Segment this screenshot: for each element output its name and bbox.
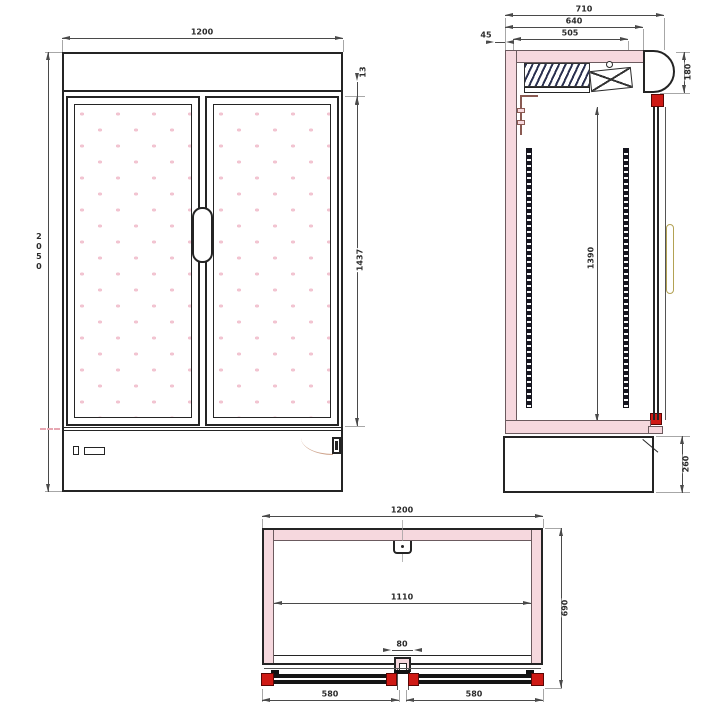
top-hinge-block	[651, 94, 664, 107]
back-wall-insulation	[505, 50, 517, 424]
evaporator-coil	[524, 63, 590, 87]
dim-front-overall-width-label: 1200	[190, 29, 214, 38]
controller-display	[84, 447, 105, 455]
plan-hinge-center-left	[386, 673, 397, 686]
dim-plan-center-mullion-label: 80	[395, 641, 408, 650]
left-door-seal	[268, 680, 386, 684]
plan-right-insulation	[531, 530, 541, 663]
glass-door-edge	[653, 107, 659, 420]
extension-line	[656, 492, 690, 493]
pipe-fitting	[517, 120, 525, 125]
drain-pipe-vertical	[520, 95, 522, 135]
dim-plan-overall-width	[262, 516, 543, 517]
extension-line	[505, 18, 506, 50]
extension-line	[543, 519, 544, 528]
fan-motor-icon	[606, 61, 613, 68]
power-switch	[73, 446, 79, 455]
canopy-bottom-edge	[64, 90, 341, 92]
dim-plan-center-mullion	[392, 650, 413, 651]
shelf-rail-rear	[526, 148, 532, 408]
right-door-glass	[213, 104, 331, 418]
door-sill	[64, 427, 341, 431]
extension-line	[343, 40, 344, 52]
leveling-mark	[40, 428, 60, 430]
dim-front-door-height-label: 1437	[357, 248, 366, 272]
floor-front-step	[648, 426, 663, 434]
left-door-glass	[74, 104, 192, 418]
dim-side-canopy-height-label: 180	[685, 63, 694, 82]
extension-line	[62, 40, 63, 52]
dim-side-interior-depth	[513, 39, 628, 40]
dim-front-top-trim-label: 13	[360, 65, 369, 78]
dim-plan-right-door-width	[406, 700, 543, 701]
extension-line	[545, 688, 562, 689]
dim-side-back-clearance	[495, 42, 505, 43]
dim-side-interior-height	[597, 107, 598, 422]
drain-pipe-horizontal	[520, 95, 538, 97]
front-view: 1200 2050 13 1437	[0, 0, 420, 520]
dim-plan-left-door-width	[262, 700, 399, 701]
shelf-rail-front	[623, 148, 629, 408]
dim-front-overall-height	[48, 52, 49, 492]
base-unit	[503, 436, 654, 493]
bottom-hinge-pin	[335, 441, 338, 450]
extension-line	[643, 29, 644, 50]
plan-hinge-center-right	[408, 673, 419, 686]
drip-tray	[524, 87, 590, 93]
front-canopy-profile	[643, 50, 675, 93]
dim-plan-interior-width	[274, 603, 531, 604]
dim-plan-right-door-width-label: 580	[465, 691, 484, 700]
evaporator-fan-icon	[589, 67, 633, 92]
pipe-fitting	[517, 108, 525, 113]
top-wall-insulation	[505, 50, 645, 63]
dim-side-overall-depth-label: 710	[575, 6, 594, 15]
plan-left-insulation	[264, 530, 274, 663]
plan-hinge-right	[531, 673, 544, 686]
door-frame-front-line	[264, 668, 541, 669]
dim-side-overall-depth	[505, 15, 664, 16]
right-door-seal	[418, 674, 536, 678]
dim-side-back-clearance-label: 45	[479, 32, 492, 41]
extension-line	[345, 426, 365, 427]
dim-plan-overall-width-label: 1200	[390, 507, 414, 516]
left-door-seal	[268, 674, 386, 678]
extension-line	[543, 689, 544, 702]
technical-drawing-sheet: 1200 2050 13 1437	[0, 0, 720, 720]
dim-side-interior-height-label: 1390	[588, 246, 597, 270]
floor-insulation	[505, 420, 651, 434]
plan-hinge-left	[261, 673, 274, 686]
extension-line	[660, 93, 690, 94]
extension-line	[262, 519, 263, 528]
dim-front-overall-height-label: 2050	[33, 232, 44, 272]
extension-line	[399, 690, 400, 702]
extension-line	[664, 18, 665, 50]
door-handle-side	[666, 224, 674, 294]
dim-plan-left-door-width-label: 580	[321, 691, 340, 700]
dim-side-base-height-label: 260	[683, 455, 692, 474]
right-door-seal	[418, 680, 536, 684]
drain-hole-icon	[401, 545, 404, 548]
plan-view: 1200 1110 80	[0, 500, 720, 720]
side-view: 710 640 505 45 180	[420, 0, 720, 520]
dim-plan-interior-width-label: 1110	[390, 594, 414, 603]
dim-plan-overall-depth-label: 690	[562, 599, 571, 618]
door-handle-front	[192, 207, 213, 263]
dim-front-overall-width	[62, 38, 343, 39]
dim-side-body-depth-label: 640	[565, 18, 584, 27]
dim-front-top-trim	[357, 82, 358, 96]
extension-line	[656, 436, 690, 437]
plan-interior-front-edge	[274, 655, 531, 656]
dim-side-interior-depth-label: 505	[561, 30, 580, 39]
